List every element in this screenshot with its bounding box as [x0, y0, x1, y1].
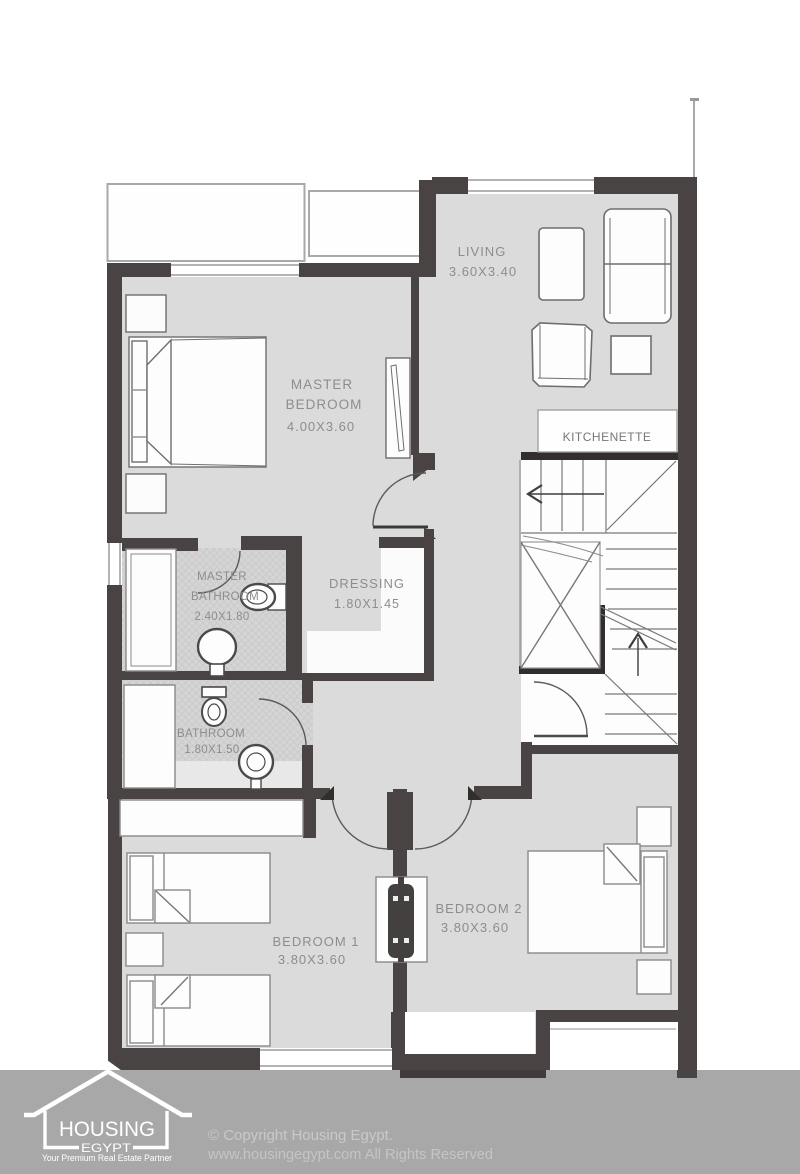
svg-text:KITCHENETTE: KITCHENETTE	[563, 430, 652, 444]
svg-text:MASTER: MASTER	[197, 571, 247, 583]
svg-text:BEDROOM 1: BEDROOM 1	[272, 934, 359, 949]
svg-text:BEDROOM: BEDROOM	[286, 397, 363, 412]
svg-text:DRESSING: DRESSING	[329, 576, 405, 591]
svg-text:LIVING: LIVING	[458, 244, 507, 259]
svg-text:© Copyright Housing Egypt.: © Copyright Housing Egypt.	[208, 1127, 393, 1144]
svg-text:1.80X1.45: 1.80X1.45	[334, 597, 400, 611]
svg-text:2.40X1.80: 2.40X1.80	[194, 611, 249, 623]
svg-text:BATHROOM: BATHROOM	[177, 728, 245, 740]
svg-text:MASTER: MASTER	[291, 377, 353, 392]
svg-text:3.60X3.40: 3.60X3.40	[449, 264, 517, 279]
svg-text:1.80X1.50: 1.80X1.50	[184, 744, 239, 756]
svg-text:BATHROOM: BATHROOM	[191, 591, 259, 603]
svg-text:www.housingegypt.com All Right: www.housingegypt.com All Rights Reserved	[207, 1146, 493, 1163]
svg-text:Your Premium Real Estate Partn: Your Premium Real Estate Partner	[42, 1153, 172, 1163]
svg-text:HOUSING: HOUSING	[59, 1118, 155, 1141]
svg-text:3.80X3.60: 3.80X3.60	[441, 920, 509, 935]
svg-text:BEDROOM 2: BEDROOM 2	[435, 901, 522, 916]
svg-text:3.80X3.60: 3.80X3.60	[278, 952, 346, 967]
svg-text:4.00X3.60: 4.00X3.60	[287, 419, 355, 434]
